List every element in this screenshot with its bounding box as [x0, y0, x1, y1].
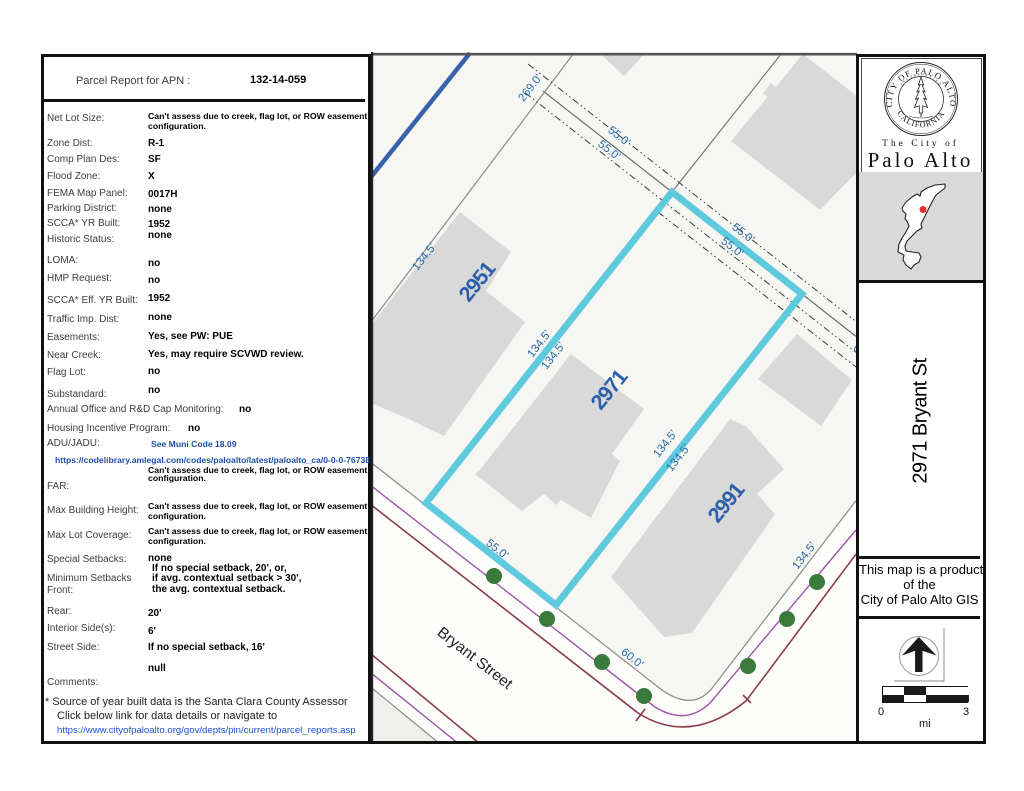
svg-text:CITY OF PALO ALTO: CITY OF PALO ALTO	[884, 66, 958, 108]
svg-text:CALIFORNIA: CALIFORNIA	[895, 109, 947, 129]
